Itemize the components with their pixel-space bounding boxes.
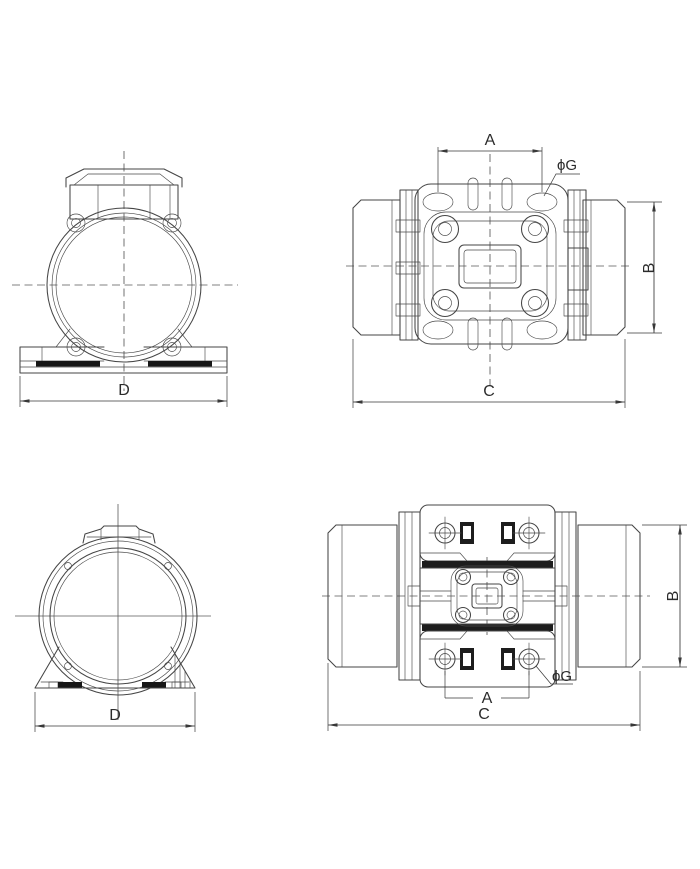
- gasket-bar-bottom: [422, 624, 553, 631]
- dim-label-a: A: [482, 690, 493, 707]
- hatching: [175, 654, 190, 688]
- mounting-base: [20, 329, 227, 373]
- mounting-slot: [527, 321, 557, 339]
- cover-bolt-hole: [65, 663, 72, 670]
- dim-label-b: B: [641, 263, 658, 274]
- bolt-hole: [429, 643, 461, 675]
- engineering-drawing-sheet: D: [0, 0, 700, 869]
- bottom-foot-plate: [420, 631, 555, 687]
- mounting-slot: [423, 193, 453, 211]
- side-block: [568, 248, 588, 290]
- rubber-pad-right: [142, 682, 166, 688]
- bolt-hole: [513, 517, 545, 549]
- right-flange: [564, 190, 588, 340]
- cover-bolt-hole: [65, 563, 72, 570]
- dim-label-b: B: [665, 591, 682, 602]
- bolt-hole: [429, 517, 461, 549]
- end-view-bottom-motor: D: [5, 500, 245, 750]
- rubber-pad-left: [58, 682, 82, 688]
- rubber-pad-left: [36, 361, 100, 367]
- gasket-bar-top: [422, 561, 553, 568]
- rubber-pad-right: [148, 361, 212, 367]
- dimension-c: C: [353, 339, 625, 408]
- dim-label-a: A: [485, 132, 496, 149]
- top-view-bottom-motor: B A ϕG C: [315, 495, 700, 745]
- dimension-b: B: [627, 202, 662, 333]
- mounting-slot: [423, 321, 453, 339]
- cover-bolt-hole: [165, 663, 172, 670]
- dimension-d: D: [35, 692, 195, 732]
- dim-label-d: D: [118, 382, 130, 399]
- dimension-d: D: [20, 376, 227, 407]
- left-end-cap: [353, 200, 400, 335]
- dim-label-d: D: [109, 707, 121, 724]
- top-foot-plate: [420, 505, 555, 561]
- top-view-top-motor: A ϕG B C: [330, 128, 700, 418]
- dimension-a: A: [445, 671, 529, 707]
- dim-label-phi-g: ϕG: [557, 157, 577, 174]
- mounting-slot-phi-g: [527, 193, 557, 211]
- right-end-cap: [583, 200, 625, 335]
- dimension-phi-g: ϕG: [536, 666, 573, 685]
- bolt-hole-phi-g: [513, 643, 545, 675]
- housing-plate: [415, 178, 568, 350]
- dim-label-c: C: [478, 706, 490, 723]
- dim-label-phi-g: ϕG: [552, 668, 572, 685]
- dim-label-c: C: [483, 383, 495, 400]
- left-flange: [396, 190, 420, 340]
- front-view-top-motor: D: [8, 145, 248, 415]
- cover-bolt-hole: [165, 563, 172, 570]
